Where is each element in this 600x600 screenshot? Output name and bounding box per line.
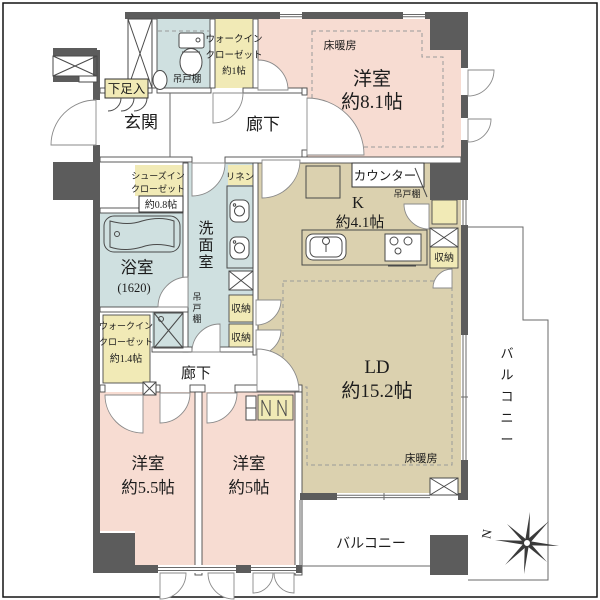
label-hallway-lower: 廊下 [181,365,211,382]
label-balcony-bottom: バルコニー [336,537,406,552]
label-bedroom-5-5: 洋室 [132,454,165,473]
label-washroom: 洗面室 [198,220,213,271]
label-wic14-line2: クローゼット [99,336,153,347]
label-storage-2: 収納 [231,331,251,344]
label-storage-1: 収納 [231,302,251,315]
label-sic-size: 約0.8帖 [145,198,178,211]
label-linen: リネン [226,172,255,183]
label-bathroom: 浴室 [121,258,154,277]
label-shoe-box: 下足入 [108,82,146,96]
label-bedroom-5: 洋室 [233,454,266,473]
label-tsuridana-kitchen: 吊戸棚 [393,188,420,199]
label-storage-kitchen: 収納 [434,251,454,264]
label-floor-heating-bedroom: 床暖房 [324,38,357,52]
label-counter: カウンター [354,169,417,183]
label-bathroom-size: (1620) [117,281,150,295]
floor-plan: N 下足入 玄関 吊戸棚 ウォークイン クローゼット 約1帖 床暖房 洋室 約8… [0,0,600,600]
label-ld-size: 約15.2帖 [341,380,412,402]
label-ld: LD [364,357,389,378]
label-floor-heating-ld: 床暖房 [405,451,438,465]
toilet-sink-icon [153,71,167,90]
label-genkan: 玄関 [124,113,158,132]
label-bedroom-5-5-size: 約5.5帖 [121,478,175,497]
label-hallway-upper: 廊下 [246,115,280,134]
label-wic1-line2: クローゼット [205,49,262,61]
label-sic-line1: シューズイン [131,170,185,181]
label-wic14-size: 約1.4帖 [110,352,143,365]
closet-hanger-pipe [258,395,293,420]
label-tsuridana-washroom: 吊戸棚 [192,292,201,324]
closet-kitchen-hanging [432,200,457,224]
label-wic1-size: 約1帖 [222,65,246,77]
label-tsuridana-toilet: 吊戸棚 [173,73,202,85]
label-bedroom-8-1: 洋室 [353,68,391,90]
label-wic1-line1: ウォークイン [205,34,262,45]
label-bedroom-5-size: 約5帖 [228,478,269,497]
label-kitchen: K [352,193,364,212]
label-bedroom-8-1-size: 約8.1帖 [341,91,403,113]
stove-icon [385,234,421,261]
label-sic-line2: クローゼット [131,183,185,194]
label-kitchen-size: 約4.1帖 [336,214,385,231]
floor-plan-canvas: N 下足入 玄関 吊戸棚 ウォークイン クローゼット 約1帖 床暖房 洋室 約8… [0,0,600,600]
label-wic14-line1: ウォークイン [99,321,153,331]
